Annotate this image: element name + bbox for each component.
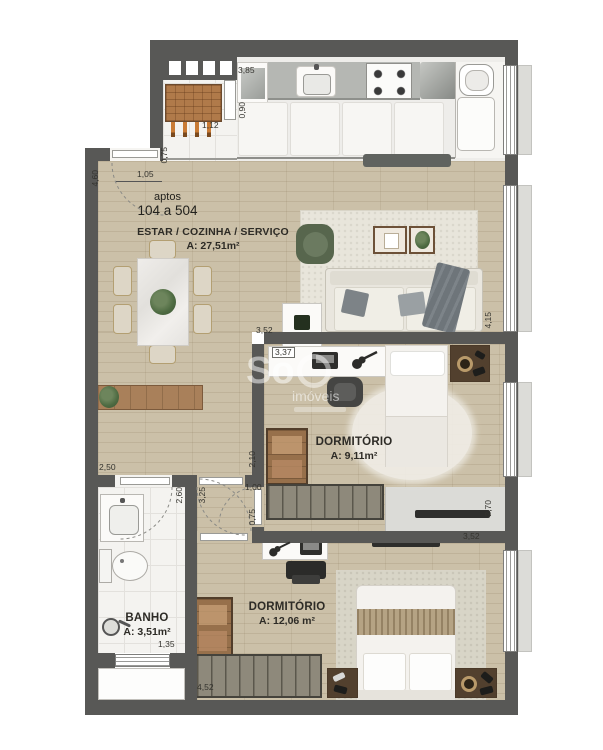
toilet-flush xyxy=(120,559,124,563)
dimension: 4,15 xyxy=(484,304,493,336)
dining-chair xyxy=(113,304,132,334)
bed-pillow xyxy=(390,351,445,376)
dining-chair xyxy=(149,345,176,364)
room-area: A: 12,06 m² xyxy=(229,615,345,627)
watermark-brand: So xyxy=(246,352,295,390)
printer xyxy=(286,561,326,579)
dimension: 2,70 xyxy=(484,492,493,524)
dining-chair xyxy=(193,266,212,296)
toilet-tank xyxy=(99,549,112,583)
dining-chair xyxy=(193,304,212,334)
decor-tray-icon xyxy=(457,356,473,372)
bedroom2-nightstand xyxy=(455,668,497,698)
laundry-window xyxy=(503,65,517,155)
bedroom2-label: DORMITÓRIO A: 12,06 m² xyxy=(229,601,345,627)
decor-item xyxy=(333,684,347,694)
wardrobe-shelf xyxy=(272,460,302,478)
unit-label-line2: 104 a 504 xyxy=(125,203,210,218)
bathroom-window xyxy=(115,654,170,667)
toilet-bowl xyxy=(112,551,148,581)
bedroom2-nightstand xyxy=(327,668,358,698)
window-sill xyxy=(518,185,532,332)
dimension: 3,52 xyxy=(256,326,273,335)
decor-item xyxy=(474,350,486,360)
washing-machine xyxy=(457,97,495,151)
wall-art-frame xyxy=(373,226,407,254)
wall xyxy=(185,487,197,700)
window-sill xyxy=(518,65,532,155)
cobogo-block xyxy=(220,61,232,75)
sideboard-plant xyxy=(99,386,119,408)
living-window xyxy=(503,185,517,332)
room-name: DORMITÓRIO xyxy=(229,601,345,613)
bed-headboard xyxy=(357,690,455,700)
bedroom2-closet-rack xyxy=(195,654,322,698)
wall xyxy=(150,40,163,152)
bed-woven-band xyxy=(357,609,455,635)
cooktop xyxy=(366,63,412,99)
dimension: 2,60 xyxy=(175,479,184,511)
dimension: 0,90 xyxy=(238,94,247,126)
skewer-icon xyxy=(171,122,175,137)
room-area: A: 3,51m² xyxy=(107,626,187,638)
dimension: 0,75 xyxy=(160,139,169,171)
side-table-decor xyxy=(294,315,310,330)
sofa-pillow xyxy=(398,291,427,316)
decor-item xyxy=(472,366,486,377)
watermark-tagline-bar xyxy=(294,407,346,412)
room-name: ESTAR / COZINHA / SERVIÇO xyxy=(133,226,293,238)
room-name: DORMITÓRIO xyxy=(298,436,410,448)
wall xyxy=(85,653,115,668)
dimension: 4,52 xyxy=(197,683,214,692)
wall xyxy=(85,148,98,715)
room-name: BANHO xyxy=(107,612,187,624)
dimension: 1,05 xyxy=(137,170,154,179)
bedroom2-double-bed xyxy=(356,585,456,700)
air-shaft xyxy=(98,668,185,700)
window-sill xyxy=(518,550,532,652)
entry-door-leaf xyxy=(112,150,158,158)
printer-tray xyxy=(292,575,320,584)
sofa xyxy=(325,268,483,332)
tank-bowl xyxy=(465,70,489,91)
watermark-subtitle: imóveis xyxy=(292,388,366,404)
wall xyxy=(98,475,115,487)
armchair xyxy=(296,224,334,264)
dimension: 2,10 xyxy=(248,443,257,475)
dimension: 1,35 xyxy=(158,640,175,649)
wardrobe-shelf xyxy=(199,631,227,651)
base-cabinet xyxy=(290,102,340,156)
faucet-icon xyxy=(314,64,319,70)
armchair-seat xyxy=(303,232,328,257)
bedroom2-door-leaf xyxy=(200,533,248,541)
unit-label-line1: aptos xyxy=(125,191,210,203)
living-label: ESTAR / COZINHA / SERVIÇO A: 27,51m² xyxy=(133,226,293,252)
dining-chair xyxy=(113,266,132,296)
decor-tray-icon xyxy=(461,676,477,692)
decor-item xyxy=(479,685,493,695)
room-area: A: 27,51m² xyxy=(133,240,293,252)
dimension: 2,50 xyxy=(99,463,116,472)
wall xyxy=(150,40,518,57)
dimension: 3,25 xyxy=(198,479,207,511)
unit-label: aptos 104 a 504 xyxy=(125,191,210,218)
watermark: So imóveis xyxy=(246,352,366,412)
cobogo-block xyxy=(169,61,181,75)
skewer-icon xyxy=(195,122,199,137)
base-cabinet xyxy=(342,102,392,156)
bathroom-vanity xyxy=(100,494,144,542)
kitchen-mat xyxy=(363,154,451,167)
wall xyxy=(170,653,197,668)
dimension: 1,12 xyxy=(202,121,219,130)
faucet-icon xyxy=(120,498,125,503)
bedroom2-window xyxy=(503,550,517,652)
laptop-icon xyxy=(300,541,322,555)
wall xyxy=(85,700,518,715)
dimension: 4,60 xyxy=(91,162,100,194)
kitchen-sink xyxy=(296,66,336,97)
sink-bowl xyxy=(303,74,331,95)
guitar-icon xyxy=(266,539,294,559)
bedroom1-label: DORMITÓRIO A: 9,11m² xyxy=(298,436,410,462)
bathroom-label: BANHO A: 3,51m² xyxy=(107,612,187,638)
room-area: A: 9,11m² xyxy=(298,450,410,462)
bedroom1-tv xyxy=(415,510,490,518)
cobogo-wall xyxy=(163,57,237,80)
cobogo-block xyxy=(203,61,215,75)
base-cabinet xyxy=(394,102,444,156)
sofa-pillow xyxy=(341,289,369,317)
bed-pillow xyxy=(409,653,452,691)
skewer-icon xyxy=(183,122,187,137)
decor-item xyxy=(480,671,494,684)
bed-pillow xyxy=(363,653,406,691)
bedroom2-wardrobe xyxy=(193,597,233,657)
wall xyxy=(264,332,505,344)
balcony-door xyxy=(224,80,236,120)
table-plant xyxy=(150,289,176,315)
watermark-logo-ring xyxy=(297,354,331,388)
bedroom1-nightstand xyxy=(450,345,490,382)
laptop-screen xyxy=(303,543,319,550)
bedroom1-closet-rack xyxy=(266,484,384,520)
window-sill xyxy=(518,382,532,477)
wardrobe-shelf xyxy=(199,605,227,625)
bath-door-leaf xyxy=(120,477,170,485)
bedroom1-window xyxy=(503,382,517,477)
laundry-tank xyxy=(459,64,494,96)
oven xyxy=(420,62,457,99)
dimension: 0,75 xyxy=(248,501,257,533)
dimension: 3,85 xyxy=(238,66,255,75)
barbecue-grill xyxy=(165,84,222,122)
art-plant xyxy=(415,231,430,249)
wall-art-frame xyxy=(409,226,435,254)
floor-plan: 3,85 1,12 1,05 3,52 3,37 2,50 1,00 3,52 … xyxy=(0,0,603,750)
balcony-edge-line xyxy=(163,158,237,160)
art-print xyxy=(384,233,399,249)
dimension: 1,00 xyxy=(245,483,262,492)
dimension: 3,52 xyxy=(463,532,480,541)
decor-item xyxy=(332,672,345,683)
vanity-bowl xyxy=(109,505,139,535)
dimension-line xyxy=(116,181,162,182)
cobogo-block xyxy=(186,61,198,75)
